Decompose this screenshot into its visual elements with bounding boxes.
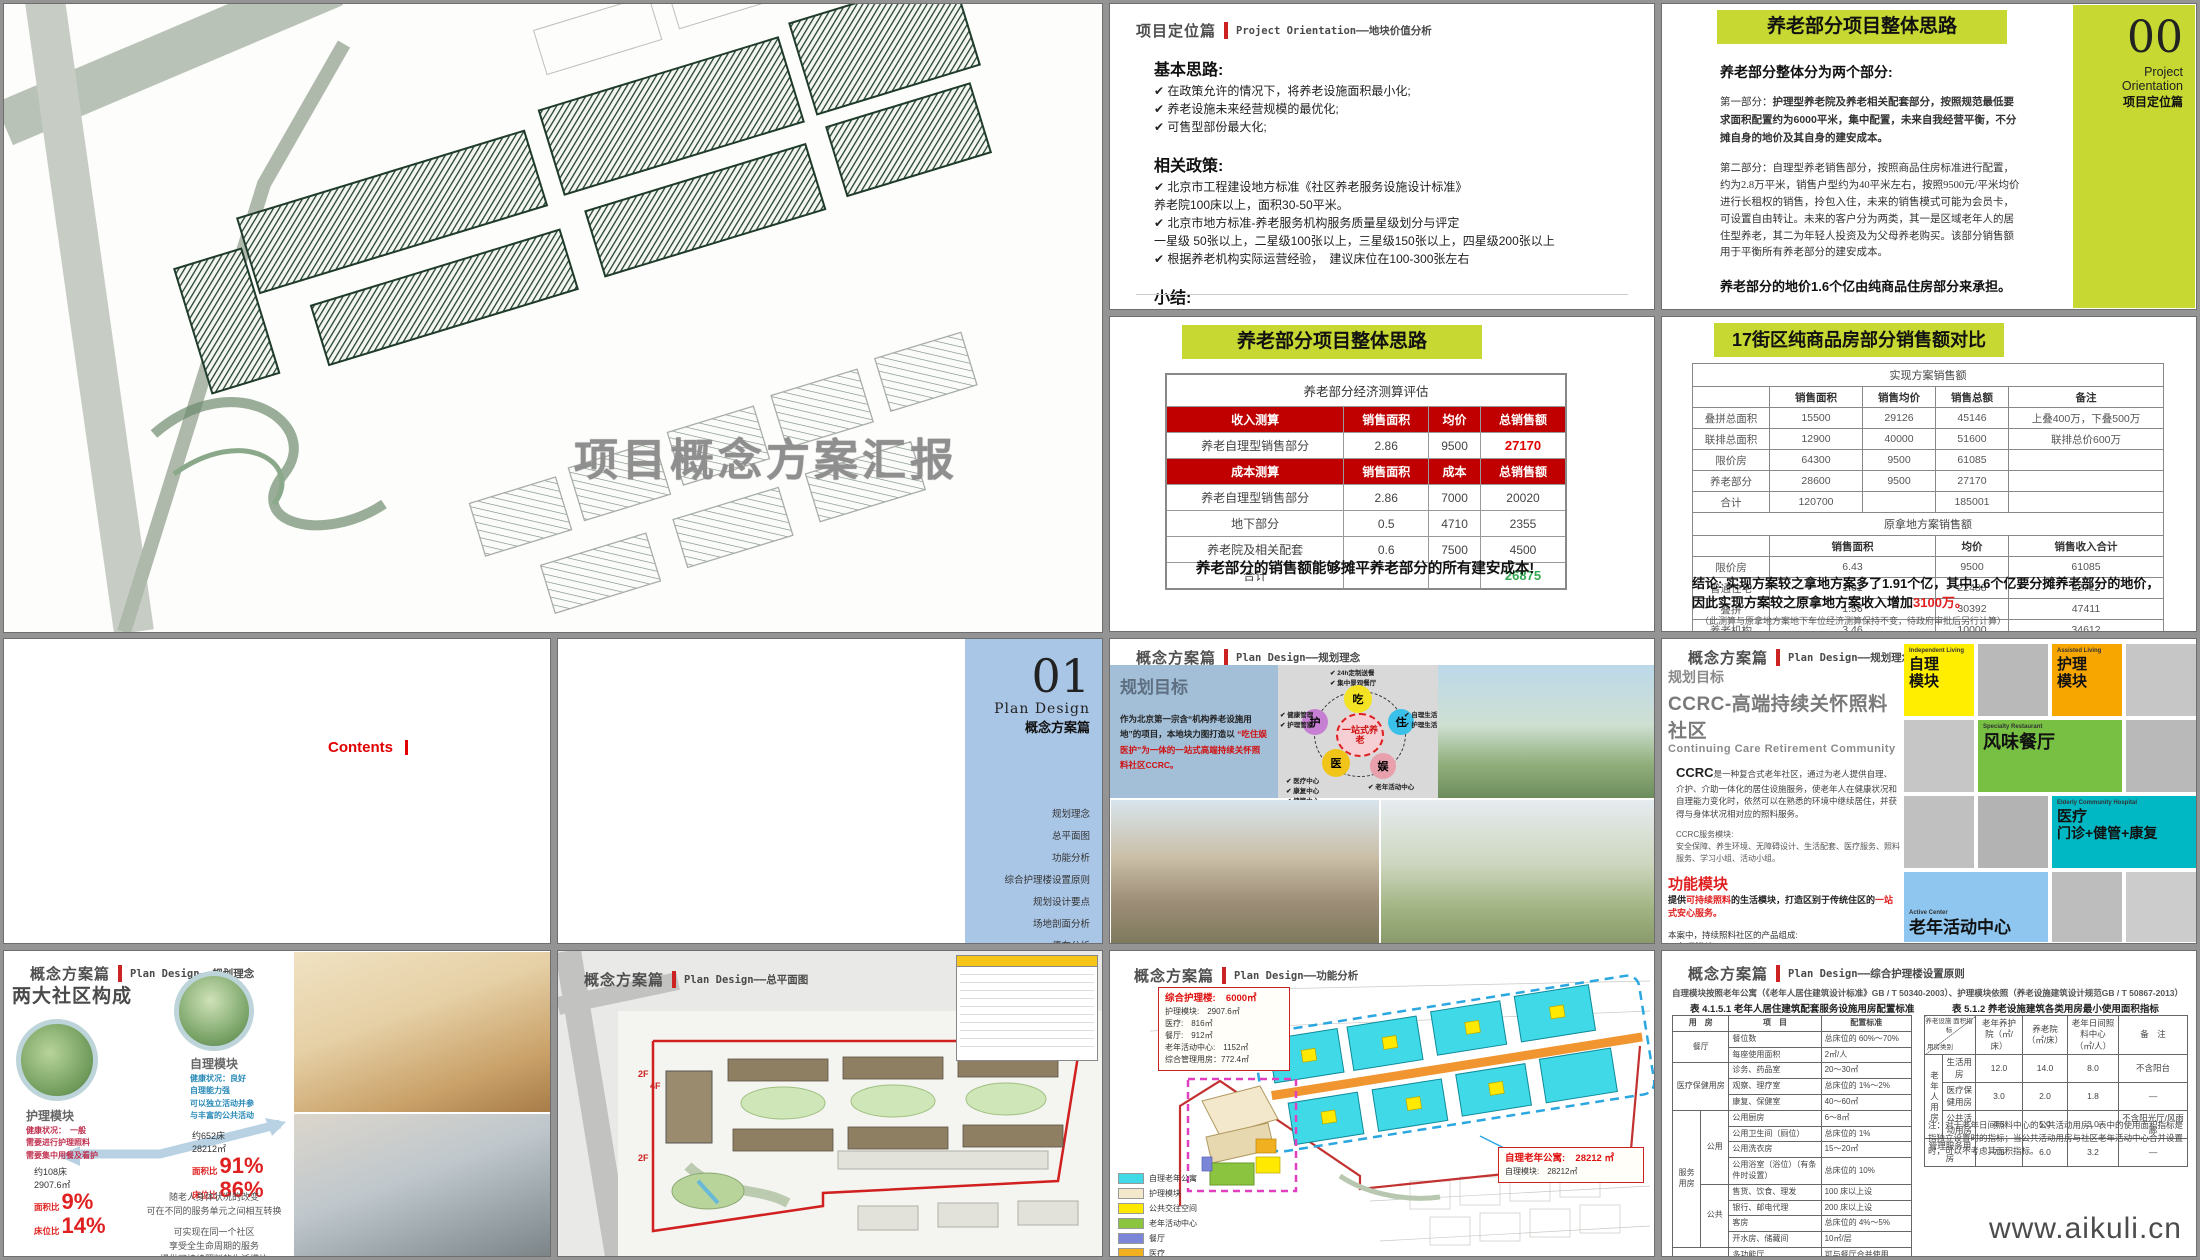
- cell: 公用洗衣房: [1729, 1142, 1821, 1158]
- callout-value: 6000㎡: [1226, 993, 1257, 1004]
- intro-line: 养老部分整体分为两个部分:: [1720, 62, 2020, 82]
- cell: 客房: [1729, 1216, 1821, 1232]
- group-cell: 餐厅: [1673, 1031, 1729, 1063]
- cell: 0.5: [1344, 511, 1429, 537]
- cover-title: 项目概念方案汇报: [574, 424, 958, 488]
- cell: 联排总价600万: [2009, 429, 2164, 450]
- col-header: 销售面积: [1770, 536, 1936, 557]
- one-stop-diagram: ✔ 24h定制送餐✔ 集中景观餐厅 吃 护 住 医 娱 一站式养老 ✔ 健康管理…: [1278, 665, 1438, 798]
- cell: 2㎡/人: [1821, 1047, 1911, 1063]
- slide-header-zh: 项目定位篇: [1136, 20, 1216, 41]
- diag-bottom-left: 用房类别: [1927, 1044, 1953, 1053]
- cell: 28600: [1770, 471, 1863, 492]
- header-divider: [1222, 967, 1226, 984]
- callout-line: 老年活动中心: 1152㎡: [1165, 1042, 1283, 1054]
- cell: 120700: [1770, 492, 1863, 513]
- legend-label: 公共交往空间: [1149, 1203, 1197, 1214]
- stat-label: 面积比: [34, 1201, 60, 1213]
- cell: —: [2119, 1083, 2188, 1111]
- table2-title: 表 5.1.2 养老设施建筑各类用房最小使用面积指标: [1952, 1001, 2159, 1015]
- callout-line: 综合管理用房：772.4㎡: [1165, 1054, 1283, 1066]
- group-cell: 休闲用房: [1673, 1247, 1729, 1257]
- cell: 公用卫生间（厕位）: [1729, 1126, 1821, 1142]
- cell: 2.86: [1344, 485, 1429, 511]
- slide-two-modules: 概念方案篇 Plan Design——规划理念 两大社区构成 自理模块 健康状况…: [3, 950, 551, 1257]
- cell: 12.0: [1976, 1055, 2023, 1083]
- mosaic-label-zh: 医疗: [2057, 808, 2191, 825]
- header-divider: [1224, 22, 1228, 39]
- cell: 总床位的 1%: [1821, 1126, 1911, 1142]
- ccrc-modules-text: 安全保障、养生环境、无障碍设计、生活配套、医疗服务、照料服务、学习小组、活动小组…: [1676, 841, 1900, 865]
- section-title-basic: 基本思路:: [1154, 56, 1624, 80]
- cell: 可与餐厅合并使用: [1821, 1247, 1911, 1257]
- mosaic-gray: [1978, 796, 2048, 868]
- mosaic-label-en: Specialty Restaurant: [1983, 724, 2117, 730]
- section-item: 综合护理楼设置原则: [977, 872, 1090, 886]
- section-title-summary: 小结:: [1154, 284, 1624, 308]
- cell: 51600: [1936, 429, 2009, 450]
- diagonal-header-cell: 养老设施 面积指标 用房类别: [1925, 1016, 1976, 1055]
- cell: 9500: [1863, 450, 1936, 471]
- legend-label: 护理模块: [1149, 1188, 1181, 1199]
- col-header: 用 房: [1673, 1016, 1729, 1032]
- policy-line: ✔ 北京市工程建设地方标准《社区养老服务设施设计标准》: [1154, 178, 1624, 196]
- legend-swatch: [1118, 1218, 1144, 1229]
- group-cell: 公用: [1701, 1110, 1729, 1184]
- siteplan-data-table: [956, 955, 1098, 1061]
- module-mosaic: Independent Living 自理模块 Assisted Living …: [1904, 644, 2196, 942]
- bullet-item: ✔ 养老设施未来经营规模的最优化;: [1154, 100, 1624, 118]
- slide-header-zh: 概念方案篇: [1688, 963, 1768, 984]
- desc-line: 与丰富的公共活动: [190, 1110, 254, 1122]
- section-item: 规划理念: [977, 806, 1090, 820]
- col-header: 项 目: [1729, 1016, 1821, 1032]
- diag-top-right: 养老设施 面积指标: [1925, 1018, 1973, 1036]
- mosaic-label-zh: 门诊+健管+康复: [2057, 825, 2191, 841]
- node-fun: 娱: [1370, 753, 1396, 779]
- footer-line: [1136, 294, 1628, 295]
- legend-label: 餐厅: [1149, 1233, 1165, 1244]
- section01-panel: 01 Plan Design 概念方案篇 规划理念 总平面图 功能分析 综合护理…: [965, 639, 1102, 943]
- col-header: 销售收入合计: [2009, 536, 2164, 557]
- col-header: 销售均价: [1863, 387, 1936, 408]
- care-module-stats: 约108床 2907.6㎡ 面积比9% 床位比14%: [34, 1165, 106, 1237]
- contents-label: Contents: [328, 739, 393, 756]
- diagram-note: ✔ 护理生活: [1404, 721, 1437, 731]
- policy-line: ✔ 根据养老机构实际运营经验， 建议床位在100-300张左右: [1154, 250, 1624, 268]
- cell: 餐位数: [1729, 1031, 1821, 1047]
- stat-area-ratio: 91%: [220, 1155, 264, 1177]
- cell: 10㎡/层: [1821, 1232, 1911, 1248]
- slide-header-en: Plan Design——功能分析: [1234, 968, 1358, 983]
- diagram-note: ✔ 老年活动中心: [1368, 783, 1414, 793]
- cell: 上叠400万，下叠500万: [2009, 408, 2164, 429]
- node-center-onestop: 一站式养老: [1336, 713, 1384, 757]
- cell: [2009, 492, 2164, 513]
- photo-apartment-interior: [294, 952, 550, 1112]
- mosaic-assisted: Assisted Living 护理模块: [2052, 644, 2122, 716]
- mosaic-label-zh: 风味餐厅: [1983, 732, 2117, 753]
- bullet-item: ✔ 在政策允许的情况下，将养老设施面积最小化;: [1154, 82, 1624, 100]
- slide-contents: Contents 01 Plan Design 概念方案篇 规划理念 总平面图 …: [3, 638, 551, 944]
- diagram-note: ✔ 自理生活: [1404, 711, 1437, 721]
- para2-text: 自理型养老销售部分，按照商品住房标准进行配置，约为2.8万平米，销售户型约为40…: [1720, 163, 2020, 258]
- cell: 40～60㎡: [1821, 1094, 1911, 1110]
- cell: 养老自理型销售部分: [1166, 485, 1344, 511]
- cell: 27170: [1936, 471, 2009, 492]
- ccrc-lead: CCRC: [1676, 765, 1714, 780]
- standards-subtitle: 自理模块按照老年公寓（《老年人居住建筑设计标准》GB / T 50340-200…: [1672, 987, 2183, 999]
- contents-divider: [405, 740, 408, 755]
- slide-economics: 养老部分项目整体思路 养老部分经济测算评估 收入测算 销售面积 均价 总销售额 …: [1109, 316, 1655, 632]
- ccrc-title-en: Continuing Care Retirement Community: [1668, 743, 1900, 755]
- cell: 医疗保健用房: [1943, 1083, 1976, 1111]
- slide-header-en: Plan Design——综合护理楼设置原则: [1788, 966, 1965, 981]
- cell: 20020: [1480, 485, 1566, 511]
- stat-bed-ratio: 14%: [62, 1215, 106, 1237]
- function-legend: 自理老年公寓 护理模块 公共交往空间 老年活动中心 餐厅 医疗 交通及连廊: [1118, 1173, 1197, 1257]
- header-divider: [672, 971, 676, 988]
- col-header: 成本测算: [1166, 459, 1344, 485]
- floor-label: 4F: [650, 1081, 661, 1091]
- section-item: 场地剖面分析: [977, 916, 1090, 930]
- ccrc-kicker: 规划目标: [1668, 667, 1900, 687]
- floor-label: 2F: [638, 1069, 649, 1079]
- cell: 7000: [1429, 485, 1481, 511]
- slide-sales-comparison: 17街区纯商品房部分销售额对比 实现方案销售额 销售面积 销售均价 销售总额 备…: [1661, 316, 2197, 632]
- section-number: 01: [977, 653, 1090, 699]
- section-name-en: Plan Design: [977, 701, 1090, 717]
- section-number: 00: [2085, 15, 2183, 61]
- cell: 总床位的 4%～5%: [1821, 1216, 1911, 1232]
- mosaic-gray: [2126, 872, 2196, 942]
- conclusion-line: 养老部分的地价1.6个亿由纯商品住房部分来承担。: [1720, 276, 2020, 295]
- col-header: 养老院（㎡/床）: [2023, 1016, 2068, 1055]
- legend-label: 老年活动中心: [1149, 1218, 1197, 1229]
- legend-swatch: [1118, 1173, 1144, 1184]
- diagram-note: ✔ 健康管理: [1280, 711, 1313, 721]
- cell: 诊务、药品室: [1729, 1063, 1821, 1079]
- cell-total-income: 27170: [1480, 433, 1566, 459]
- mosaic-label-zh: 自理模块: [1909, 656, 1949, 691]
- header-divider: [1224, 649, 1228, 666]
- legend-label: 自理老年公寓: [1149, 1173, 1197, 1184]
- cell: 185001: [1936, 492, 2009, 513]
- rendering-photo-street-right: [1381, 800, 1654, 943]
- desc-line: 健康状况： 一般: [26, 1125, 98, 1137]
- slide-title-bar: 养老部分项目整体思路: [1182, 325, 1482, 359]
- cell: 15～20㎡: [1821, 1142, 1911, 1158]
- slide-title: 两大社区构成: [12, 981, 132, 1008]
- slide-header-en: Plan Design——规划理念: [1788, 650, 1912, 665]
- col-header: 总销售额: [1480, 459, 1566, 485]
- col-header: 均价: [1936, 536, 2009, 557]
- header-divider: [118, 965, 122, 982]
- cell: 8.0: [2068, 1055, 2119, 1083]
- slide-overall-idea-text: 养老部分项目整体思路 养老部分整体分为两个部分: 第一部分：护理型养老院及养老相…: [1661, 3, 2197, 310]
- watermark: www.aikuli.cn: [1989, 1212, 2182, 1246]
- col-header: 成本: [1429, 459, 1481, 485]
- mosaic-gray: [1904, 796, 1974, 868]
- diagram-note: ✔ 康复中心: [1286, 787, 1319, 797]
- cell: 1.8: [2068, 1083, 2119, 1111]
- col-header: [1693, 387, 1770, 408]
- cell: 14.0: [2023, 1055, 2068, 1083]
- goal-body-black: 作为北京第一宗含“机构养老设施用地”的项目，本地块力图打造以: [1120, 714, 1252, 739]
- group-cell: 服务用房: [1673, 1110, 1701, 1247]
- photo-care-room-interior: [294, 1114, 550, 1256]
- callout-line: 医疗: 816㎡: [1165, 1018, 1283, 1030]
- floor-label: 2F: [638, 1153, 649, 1163]
- standards-note: 注：对于老年日间照料中心的公共活动用房，表中的使用面积指标是指独立设置时的指标；…: [1928, 1119, 2186, 1159]
- callout-apartment: 自理老年公寓: 28212 ㎡ 自理模块: 28212㎡: [1498, 1147, 1644, 1183]
- slide-cover-sketch: 项目概念方案汇报: [3, 3, 1103, 633]
- legend-swatch: [1118, 1203, 1144, 1214]
- fm-black: 提供: [1668, 895, 1686, 905]
- self-module-name: 自理模块: [190, 1055, 238, 1072]
- note-line: 可在不同的服务单元之间相互转换: [114, 1205, 314, 1219]
- fm-black: 的生活模块，打造区别于传统住区的: [1731, 895, 1875, 905]
- cell: 2.0: [2023, 1083, 2068, 1111]
- mosaic-label-en: Elderly Community Hospital: [2057, 800, 2191, 806]
- table2-title: 原拿地方案销售额: [1693, 513, 2164, 536]
- para1-label: 第一部分：: [1720, 97, 1773, 108]
- header-divider: [1776, 649, 1780, 666]
- cell: 4710: [1429, 511, 1481, 537]
- cell: 养老部分: [1693, 471, 1770, 492]
- photo-care-module: [16, 1019, 98, 1101]
- cell: 多功能厅: [1729, 1247, 1821, 1257]
- col-header: [1693, 536, 1770, 557]
- site-sketch-drawing: [4, 4, 1102, 632]
- cell: 限价房: [1693, 450, 1770, 471]
- slide-header-en: Project Orientation——地块价值分析: [1236, 23, 1432, 38]
- section-title-policy: 相关政策:: [1154, 152, 1624, 176]
- desc-line: 可以独立活动并参: [190, 1098, 254, 1110]
- stat-label: 面积比: [192, 1165, 218, 1177]
- cell: 总床位的 10%: [1821, 1158, 1911, 1185]
- slide-header-en: Plan Design——规划理念: [1236, 650, 1360, 665]
- header-divider: [1776, 965, 1780, 982]
- policy-line: 一星级 50张以上，二星级100张以上，三星级150张以上，四星级200张以上: [1154, 232, 1624, 250]
- bullet-item: ✔ 可售型部份最大化;: [1154, 118, 1624, 136]
- cell: 总床位的 60%～70%: [1821, 1031, 1911, 1047]
- cell: [2009, 471, 2164, 492]
- note-line: 随老人身体状况的改变: [114, 1191, 314, 1205]
- mosaic-gray: [2052, 872, 2122, 942]
- cell: 公用厨房: [1729, 1110, 1821, 1126]
- cell: 64300: [1770, 450, 1863, 471]
- mosaic-label-en: Independent Living: [1909, 648, 1969, 654]
- standards-table-left: 用 房 项 目 配置标准 餐厅餐位数总床位的 60%～70% 每座使用面积2㎡/…: [1672, 1015, 1912, 1257]
- cell: 生活用房: [1943, 1055, 1976, 1083]
- diagram-note: ✔ 护理管家: [1280, 721, 1313, 731]
- function-module-title: 功能模块: [1668, 873, 1900, 894]
- slide-orientation-analysis: 项目定位篇 Project Orientation——地块价值分析 基本思路: …: [1109, 3, 1655, 310]
- self-beds: 约652床: [192, 1129, 264, 1142]
- col-header: 销售面积: [1344, 407, 1429, 433]
- callout-title: 综合护理楼:: [1165, 993, 1216, 1004]
- mosaic-hospital: Elderly Community Hospital 医疗 门诊+健管+康复: [2052, 796, 2196, 868]
- section-item: 功能分析: [977, 850, 1090, 864]
- diagram-note: ✔ 医疗中心: [1286, 777, 1319, 787]
- cell: 每座使用面积: [1729, 1047, 1821, 1063]
- presentation-grid: 项目概念方案汇报 项目定位篇 Project Orientation——地块价值…: [0, 0, 2200, 1260]
- callout-line: 餐厅: 912㎡: [1165, 1030, 1283, 1042]
- col-header: 备注: [2009, 387, 2164, 408]
- slide-header-zh: 概念方案篇: [584, 969, 664, 990]
- cell: 2.86: [1344, 433, 1429, 459]
- mosaic-label-en: Assisted Living: [2057, 648, 2117, 654]
- table1-title: 实现方案销售额: [1693, 364, 2164, 387]
- cell: 银行、邮电代理: [1729, 1200, 1821, 1216]
- diagram-note: ✔ 24h定制送餐: [1330, 669, 1376, 679]
- cell: 200 床以上设: [1821, 1200, 1911, 1216]
- legend-swatch: [1118, 1248, 1144, 1257]
- slide-title-bar: 养老部分项目整体思路: [1717, 10, 2007, 44]
- stat-area-ratio: 9%: [62, 1191, 94, 1213]
- slide-header-zh: 概念方案篇: [1688, 647, 1768, 668]
- mosaic-gray: [1978, 644, 2048, 716]
- conclusion-note: （此测算与原拿地方案地下车位经济测算保持不变，待政府审批后另行计算）: [1692, 615, 2170, 628]
- cell: [1863, 492, 1936, 513]
- table1-title: 表 4.1.5.1 老年人居住建筑配套服务设施用房配置标准: [1690, 1001, 1914, 1015]
- slide-siteplan: 概念方案篇 Plan Design——总平面图 2F 4F 2F: [557, 950, 1103, 1257]
- slide-standards: 概念方案篇 Plan Design——综合护理楼设置原则 自理模块按照老年公寓（…: [1661, 950, 2197, 1257]
- col-header: 配置标准: [1821, 1016, 1911, 1032]
- transition-note: 随老人身体状况的改变 可在不同的服务单元之间相互转换 可实现在同一个社区 享受全…: [114, 1191, 314, 1257]
- legend-swatch: [1118, 1188, 1144, 1199]
- callout-line: 自理模块: 28212㎡: [1505, 1166, 1637, 1178]
- legend-swatch: [1118, 1233, 1144, 1244]
- cell: 叠拼总面积: [1693, 408, 1770, 429]
- care-beds: 约108床: [34, 1165, 106, 1178]
- cell: 不含阳台: [2119, 1055, 2188, 1083]
- ccrc-title-zh: CCRC-高端持续关怀照料社区: [1668, 689, 1900, 743]
- product-item: 1.自理模块: [1668, 941, 1900, 944]
- legend-label: 医疗: [1149, 1248, 1165, 1257]
- cell: 15500: [1770, 408, 1863, 429]
- section-name-zh: 项目定位篇: [2085, 93, 2183, 110]
- stat-label: 床位比: [34, 1225, 60, 1237]
- mosaic-independent: Independent Living 自理模块: [1904, 644, 1974, 716]
- section-sidebar: 00 Project Orientation 项目定位篇: [2073, 5, 2195, 308]
- cell: 3.0: [1976, 1083, 2023, 1111]
- cell: 康复、保健室: [1729, 1094, 1821, 1110]
- cell: 开水房、储藏间: [1729, 1232, 1821, 1248]
- table-title: 养老部分经济测算评估: [1166, 374, 1566, 407]
- mosaic-gray: [1904, 720, 1974, 792]
- comparison-conclusion: 结论: 实现方案较之拿地方案多了1.91个亿，其中1.6个亿要分摊养老部分的地价…: [1692, 575, 2170, 628]
- note-line: 提供可持续照料的生活模块: [114, 1253, 314, 1257]
- rendering-photo-street-left: [1111, 800, 1379, 943]
- cell: 合计: [1693, 492, 1770, 513]
- cell: 29126: [1863, 408, 1936, 429]
- rendering-photo-courtyard: [1438, 665, 1654, 798]
- cell: 9500: [1429, 433, 1481, 459]
- cell: 9500: [1863, 471, 1936, 492]
- cell: 45146: [1936, 408, 2009, 429]
- mosaic-label-zh: 老年活动中心: [1909, 918, 2043, 938]
- mosaic-gray: [2126, 644, 2196, 716]
- group-cell: 医疗保健用房: [1673, 1063, 1729, 1110]
- slide-header: 项目定位篇 Project Orientation——地块价值分析: [1136, 20, 1432, 41]
- cell: 公用浴室（浴位）（有条件时设置）: [1729, 1158, 1821, 1185]
- cell: 地下部分: [1166, 511, 1344, 537]
- policy-line: 养老院100床以上，面积30-50平米。: [1154, 196, 1624, 214]
- desc-line: 需要集中用餐及看护: [26, 1150, 98, 1162]
- care-module-desc: 健康状况： 一般 需要进行护理照料 需要集中用餐及看护: [26, 1125, 98, 1162]
- policy-line: ✔ 北京市地方标准-养老服务机构服务质量星级划分与评定: [1154, 214, 1624, 232]
- section-item: 规划设计要点: [977, 894, 1090, 908]
- photo-self-module: [174, 971, 254, 1051]
- mosaic-restaurant: Specialty Restaurant 风味餐厅: [1978, 720, 2122, 792]
- note-line: 享受全生命周期的服务: [114, 1240, 314, 1254]
- callout-care-building: 综合护理楼: 6000㎡ 护理模块: 2907.6㎡ 医疗: 816㎡ 餐厅: …: [1158, 987, 1290, 1071]
- economics-conclusion: 养老部分的销售额能够摊平养老部分的所有建安成本!: [1150, 559, 1580, 579]
- node-eat: 吃: [1344, 685, 1372, 713]
- goal-title: 规划目标: [1120, 673, 1268, 698]
- col-header: 收入测算: [1166, 407, 1344, 433]
- cell: [2009, 450, 2164, 471]
- product-list-intro: 本案中，持续照料社区的产品组成:: [1668, 929, 1900, 941]
- fm-red: 可持续照料: [1686, 895, 1731, 905]
- self-module-desc: 健康状况：良好 自理能力强 可以独立活动并参 与丰富的公共活动: [190, 1073, 254, 1123]
- slide-ccrc: 概念方案篇 Plan Design——规划理念 规划目标 CCRC-高端持续关怀…: [1661, 638, 2197, 944]
- col-header: 销售总额: [1936, 387, 2009, 408]
- cell: 售货、饮食、理发: [1729, 1184, 1821, 1200]
- section-name-en: Project Orientation: [2085, 65, 2183, 93]
- note-line: 可实现在同一个社区: [114, 1226, 314, 1240]
- goal-text-panel: 规划目标 作为北京第一宗含“机构养老设施用地”的项目，本地块力图打造以 “吃住娱…: [1110, 665, 1278, 798]
- slide-title-bar: 17街区纯商品房部分销售额对比: [1714, 323, 2004, 357]
- slide-header-zh: 概念方案篇: [1134, 965, 1214, 986]
- col-header: 均价: [1429, 407, 1481, 433]
- callout-title: 自理老年公寓:: [1505, 1153, 1565, 1164]
- slide-planning-goal: 概念方案篇 Plan Design——规划理念 规划目标 作为北京第一宗含“机构…: [1109, 638, 1655, 944]
- conclusion-red: 3100万。: [1913, 595, 1968, 610]
- col-header: 销售面积: [1344, 459, 1429, 485]
- col-header: 备 注: [2119, 1016, 2188, 1055]
- cell: 2355: [1480, 511, 1566, 537]
- cell: 40000: [1863, 429, 1936, 450]
- mosaic-active: Active Center 老年活动中心: [1904, 872, 2048, 942]
- slide-header-en: Plan Design——总平面图: [684, 972, 808, 987]
- section-name-zh: 概念方案篇: [977, 717, 1090, 736]
- economics-table: 养老部分经济测算评估 收入测算 销售面积 均价 总销售额 养老自理型销售部分 2…: [1165, 373, 1567, 590]
- desc-line: 自理能力强: [190, 1085, 254, 1097]
- section01-items: 规划理念 总平面图 功能分析 综合护理楼设置原则 规划设计要点 场地剖面分析 停…: [977, 806, 1090, 944]
- cell: 养老自理型销售部分: [1166, 433, 1344, 459]
- ccrc-modules-label: CCRC服务模块:: [1676, 829, 1900, 841]
- para2-label: 第二部分：: [1720, 163, 1773, 174]
- slide-section01-divider: 01 Plan Design 概念方案篇 规划理念 总平面图 功能分析 综合护理…: [557, 638, 1103, 944]
- section-item: 停车分析: [977, 938, 1090, 944]
- desc-line: 健康状况：良好: [190, 1073, 254, 1085]
- cell: 联排总面积: [1693, 429, 1770, 450]
- callout-line: 护理模块: 2907.6㎡: [1165, 1006, 1283, 1018]
- cell: 61085: [1936, 450, 2009, 471]
- slide-function-analysis: 概念方案篇 Plan Design——功能分析 综合护理楼: 6000㎡ 护理模…: [1109, 950, 1655, 1257]
- col-header: 老年养护院（㎡/床）: [1976, 1016, 2023, 1055]
- cell: 20～30㎡: [1821, 1063, 1911, 1079]
- cell: 观察、理疗室: [1729, 1079, 1821, 1095]
- mosaic-label-zh: 护理模块: [2057, 656, 2097, 691]
- cell: 12900: [1770, 429, 1863, 450]
- cell: 6～8㎡: [1821, 1110, 1911, 1126]
- mosaic-gray: [2126, 720, 2196, 792]
- cell: 总床位的 1%～2%: [1821, 1079, 1911, 1095]
